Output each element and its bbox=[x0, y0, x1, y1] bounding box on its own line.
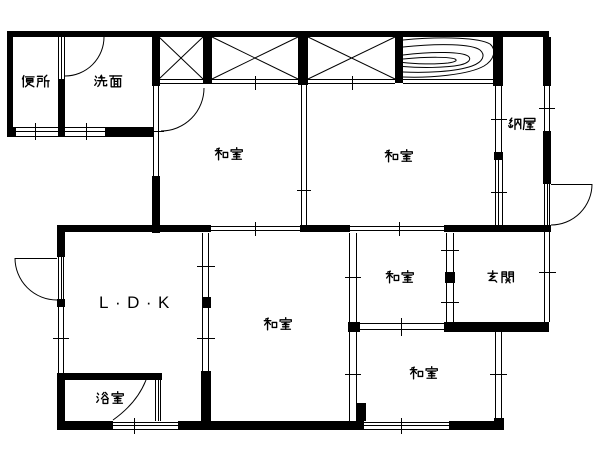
svg-text:L·D·K: L·D·K bbox=[99, 293, 176, 312]
